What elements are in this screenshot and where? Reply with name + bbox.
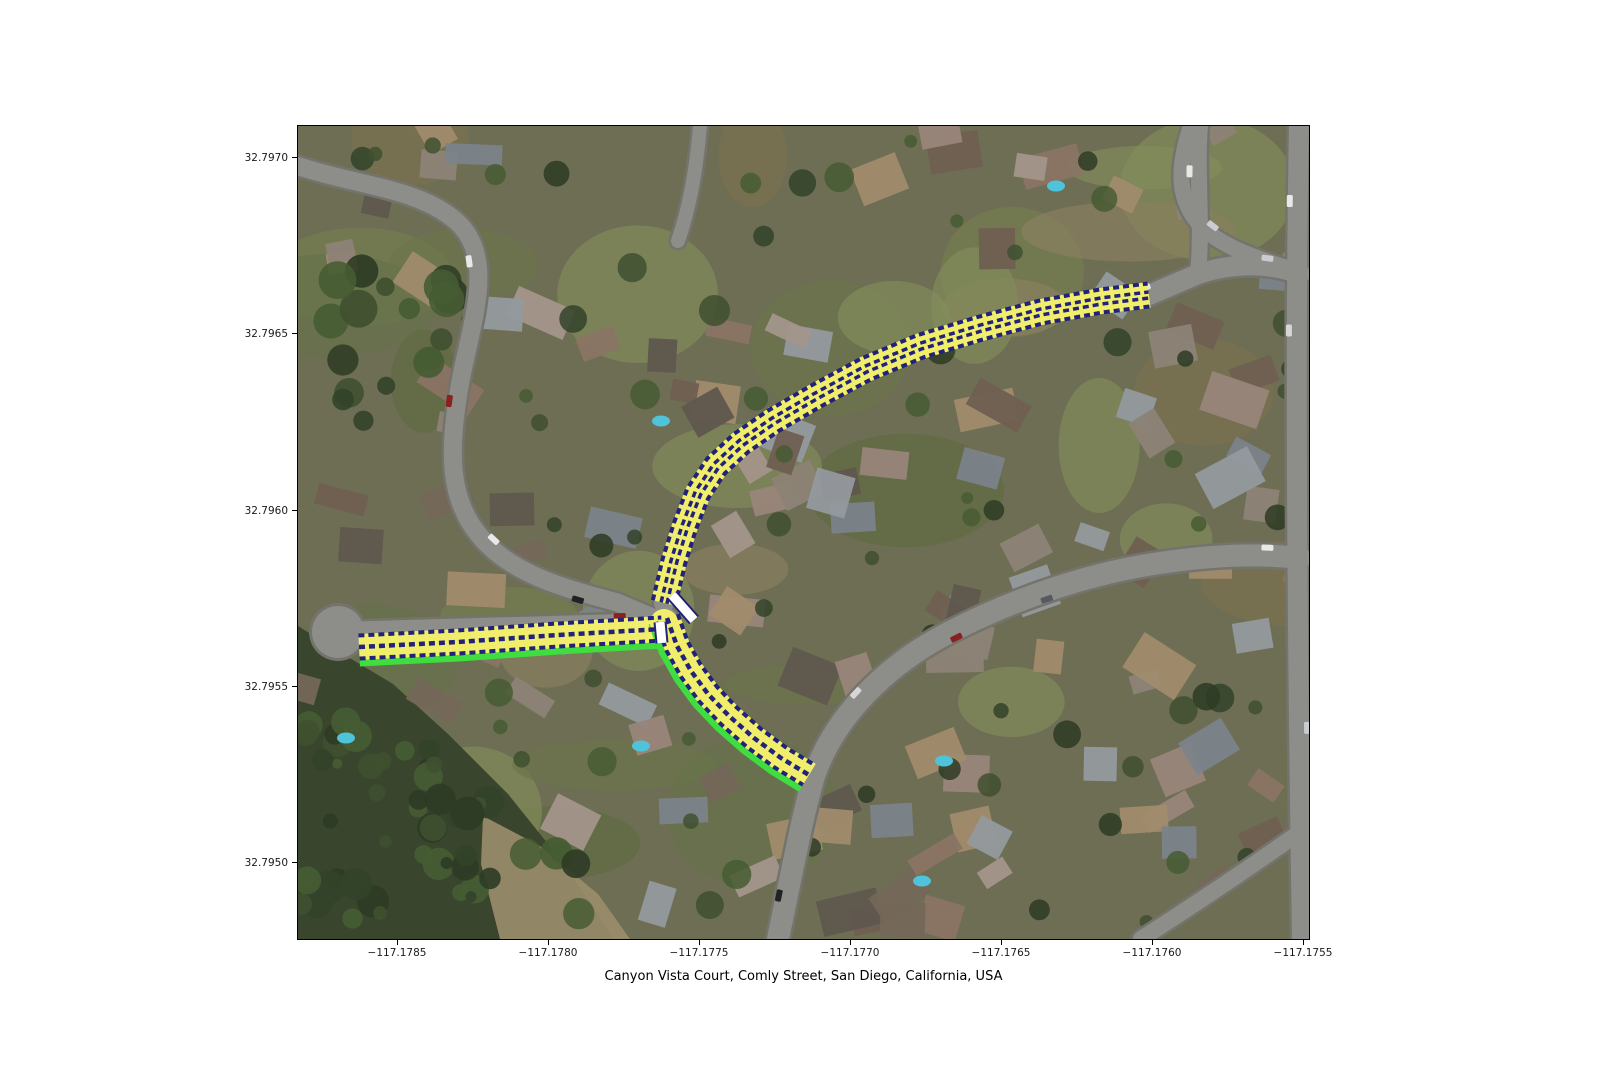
y-tick-label: 32.7965 bbox=[208, 329, 288, 340]
y-tick-label: 32.7950 bbox=[208, 858, 288, 869]
y-tick-mark bbox=[292, 862, 297, 863]
x-tick-mark bbox=[548, 940, 549, 945]
map-axes bbox=[297, 125, 1310, 940]
x-tick-label: −117.1770 bbox=[821, 948, 880, 959]
x-tick-label: −117.1755 bbox=[1274, 948, 1333, 959]
y-tick-mark bbox=[292, 333, 297, 334]
crosswalk-bar bbox=[660, 622, 662, 643]
x-tick-mark bbox=[397, 940, 398, 945]
x-tick-label: −117.1785 bbox=[368, 948, 427, 959]
map-title: Canyon Vista Court, Comly Street, San Di… bbox=[297, 969, 1310, 984]
y-tick-label: 32.7970 bbox=[208, 153, 288, 164]
aerial-map bbox=[298, 126, 1309, 939]
x-tick-mark bbox=[850, 940, 851, 945]
x-tick-label: −117.1780 bbox=[519, 948, 578, 959]
x-tick-mark bbox=[1001, 940, 1002, 945]
x-tick-label: −117.1765 bbox=[972, 948, 1031, 959]
x-tick-mark bbox=[1303, 940, 1304, 945]
x-tick-label: −117.1760 bbox=[1123, 948, 1182, 959]
y-tick-label: 32.7955 bbox=[208, 682, 288, 693]
figure: Canyon Vista Court, Comly Street, San Di… bbox=[0, 0, 1605, 1080]
y-tick-mark bbox=[292, 686, 297, 687]
x-tick-label: −117.1775 bbox=[670, 948, 729, 959]
y-tick-mark bbox=[292, 157, 297, 158]
x-tick-mark bbox=[1152, 940, 1153, 945]
y-tick-mark bbox=[292, 510, 297, 511]
x-tick-mark bbox=[699, 940, 700, 945]
y-tick-label: 32.7960 bbox=[208, 506, 288, 517]
